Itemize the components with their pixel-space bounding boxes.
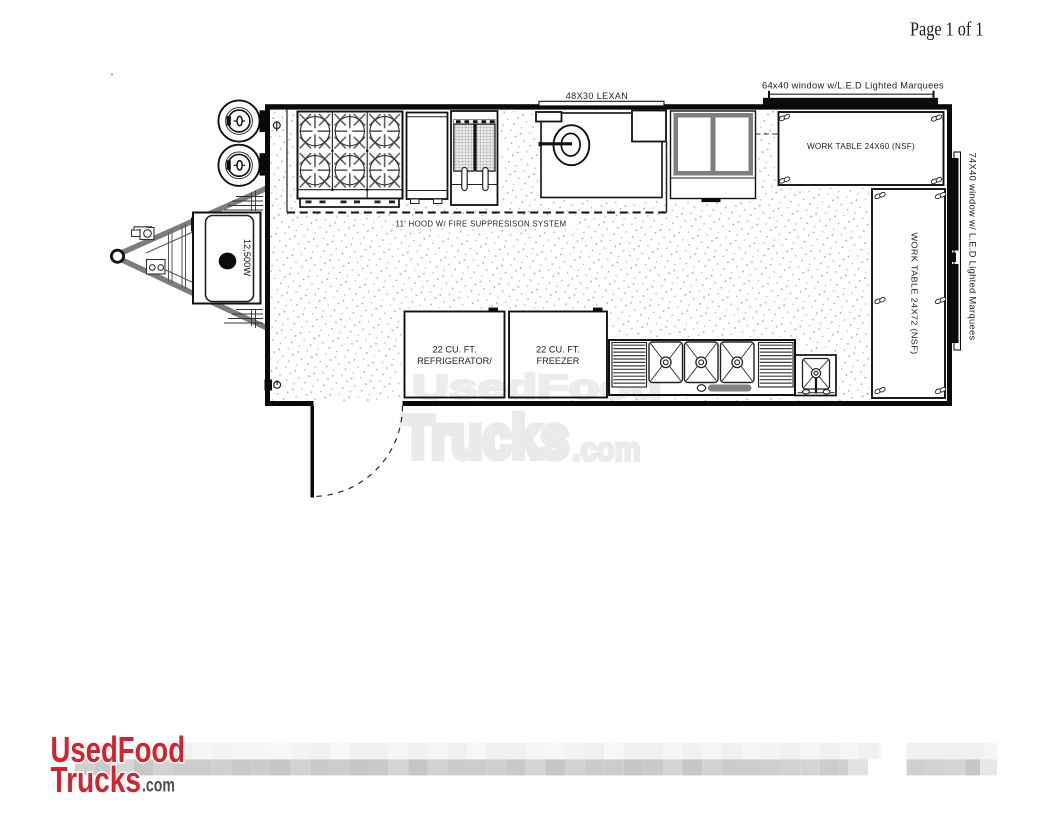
svg-text:22 CU. FT.: 22 CU. FT. [536, 345, 580, 355]
svg-text:.com: .com [142, 775, 175, 797]
svg-text:Trucks: Trucks [51, 759, 142, 800]
svg-text:WORK TABLE 24X72 (NSF): WORK TABLE 24X72 (NSF) [910, 233, 920, 355]
svg-text:REFRIGERATOR/: REFRIGERATOR/ [417, 356, 492, 366]
svg-text:FREEZER: FREEZER [537, 356, 580, 366]
svg-text:Trucks: Trucks [402, 404, 569, 471]
svg-text:22 CU. FT.: 22 CU. FT. [433, 345, 477, 355]
svg-text:12,500W: 12,500W [242, 239, 252, 276]
svg-text:48X30 LEXAN: 48X30 LEXAN [566, 91, 628, 101]
svg-text:.com: .com [573, 431, 641, 468]
svg-text:Page 1 of 1: Page 1 of 1 [910, 19, 984, 41]
svg-text:74X40 window w/ L.E.D Lighted: 74X40 window w/ L.E.D Lighted Marquees [968, 153, 978, 341]
svg-text:WORK TABLE 24X60 (NSF): WORK TABLE 24X60 (NSF) [807, 141, 915, 151]
svg-text:11' HOOD W/ FIRE SUPPRESISON S: 11' HOOD W/ FIRE SUPPRESISON SYSTEM [396, 219, 567, 229]
svg-text:64x40 window w/L.E.D Lighted M: 64x40 window w/L.E.D Lighted Marquees [762, 81, 944, 91]
